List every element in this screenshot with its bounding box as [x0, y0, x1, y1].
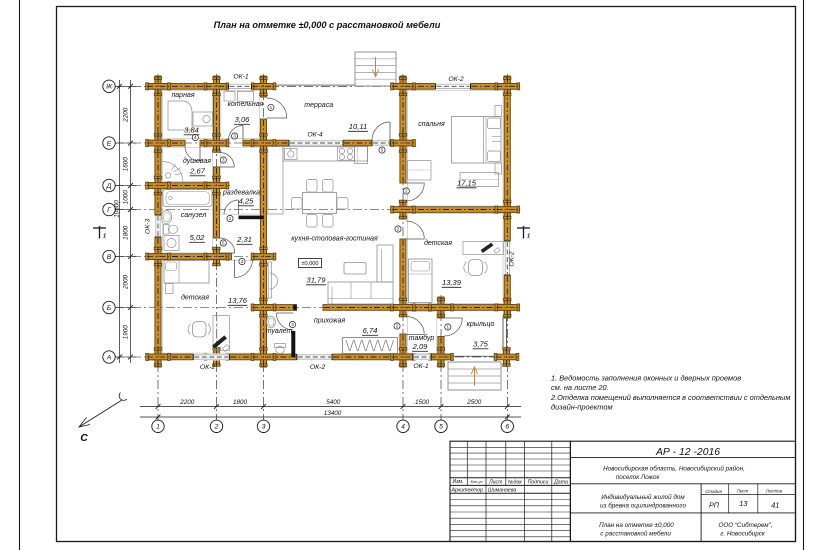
svg-text:туалет: туалет [266, 328, 293, 335]
svg-text:крыльцо: крыльцо [467, 321, 495, 328]
svg-text:5: 5 [222, 241, 225, 246]
svg-text:ОК-2: ОК-2 [310, 364, 326, 371]
svg-text:АР - 12 -2016: АР - 12 -2016 [655, 447, 720, 458]
svg-text:1000: 1000 [123, 190, 130, 205]
svg-text:тамбур: тамбур [409, 334, 435, 342]
svg-text:терраса: терраса [304, 102, 333, 109]
svg-text:±0,000: ±0,000 [301, 261, 318, 267]
svg-text:Новосибирская область, Новосиб: Новосибирская область, Новосибирский рай… [603, 465, 745, 473]
svg-text:1: 1 [527, 234, 530, 240]
svg-text:1. Ведомость заполнения оконны: 1. Ведомость заполнения оконных и дверны… [551, 374, 741, 383]
svg-text:5: 5 [439, 424, 443, 431]
svg-text:ОК-2: ОК-2 [200, 364, 216, 371]
svg-text:ОК-1: ОК-1 [233, 74, 249, 81]
svg-text:13: 13 [739, 499, 748, 508]
svg-text:2200: 2200 [179, 399, 195, 406]
svg-text:2,67: 2,67 [189, 167, 206, 176]
svg-text:санузел: санузел [181, 212, 207, 219]
svg-text:с расстановкой мебели: с расстановкой мебели [600, 529, 671, 537]
svg-text:3,06: 3,06 [235, 115, 251, 124]
svg-text:ООО “Сибтерем”,: ООО “Сибтерем”, [719, 521, 773, 529]
svg-text:5,02: 5,02 [190, 233, 206, 242]
svg-text:2.Отделка помещений выполняетс: 2.Отделка помещений выполняется в соотве… [550, 393, 790, 402]
svg-text:Стадия: Стадия [705, 489, 722, 494]
svg-text:3: 3 [291, 322, 294, 327]
svg-text:41: 41 [771, 501, 779, 510]
svg-text:Кол.уч: Кол.уч [471, 479, 483, 484]
svg-text:Е: Е [107, 140, 112, 147]
svg-text:13,39: 13,39 [442, 278, 462, 287]
svg-text:Дата: Дата [553, 479, 568, 485]
svg-text:детская: детская [181, 294, 209, 302]
svg-text:3,84: 3,84 [184, 126, 199, 135]
svg-text:прихожая: прихожая [314, 318, 346, 325]
svg-text:2500: 2500 [466, 399, 482, 406]
svg-text:Шиманаева: Шиманаева [488, 487, 516, 493]
svg-text:6: 6 [505, 424, 509, 431]
svg-text:2: 2 [214, 424, 219, 431]
svg-text:1500: 1500 [415, 399, 430, 406]
svg-text:котельная: котельная [228, 101, 264, 108]
svg-text:г. Новосибирск: г. Новосибирск [720, 529, 766, 537]
svg-text:спальня: спальня [418, 121, 445, 128]
svg-text:Листов: Листов [765, 489, 783, 494]
svg-text:1900: 1900 [123, 325, 130, 340]
svg-text:детская: детская [424, 239, 452, 247]
svg-text:1: 1 [447, 325, 450, 330]
svg-text:10,11: 10,11 [349, 122, 367, 131]
svg-text:2: 2 [405, 189, 408, 194]
svg-text:1: 1 [229, 216, 232, 221]
svg-text:А: А [106, 354, 112, 361]
svg-text:Архитектор: Архитектор [451, 487, 484, 493]
svg-text:3: 3 [233, 134, 236, 139]
svg-text:из бревна оцилиндрованного: из бревна оцилиндрованного [600, 501, 686, 509]
svg-text:3,75: 3,75 [473, 340, 489, 349]
svg-text:13400: 13400 [324, 410, 342, 417]
svg-text:1600: 1600 [123, 157, 130, 172]
svg-text:17,15: 17,15 [457, 179, 477, 188]
svg-text:1800: 1800 [123, 225, 130, 240]
svg-text:ОК-1: ОК-1 [413, 363, 429, 370]
svg-text:ОК-4: ОК-4 [307, 132, 323, 139]
svg-text:1: 1 [103, 234, 106, 240]
svg-text:2: 2 [397, 227, 400, 232]
svg-text:Лист: Лист [736, 489, 749, 494]
svg-text:4: 4 [401, 424, 405, 431]
svg-text:Д: Д [106, 183, 112, 190]
svg-text:31,79: 31,79 [306, 276, 326, 285]
svg-text:Б: Б [107, 305, 112, 312]
svg-text:Изм.: Изм. [452, 479, 463, 485]
svg-text:Подписи: Подписи [528, 479, 549, 485]
svg-text:2000: 2000 [123, 275, 130, 291]
svg-text:2,31: 2,31 [236, 235, 252, 244]
svg-text:раздевалка: раздевалка [222, 189, 260, 197]
svg-text:РП: РП [709, 501, 720, 510]
svg-text:4: 4 [194, 135, 197, 140]
svg-text:Лист: Лист [488, 479, 503, 485]
svg-text:5400: 5400 [326, 399, 341, 406]
svg-text:2,09: 2,09 [412, 342, 429, 351]
svg-text:План на отметке ±0,000: План на отметке ±0,000 [599, 522, 674, 529]
svg-text:2: 2 [241, 259, 244, 264]
svg-text:парная: парная [171, 92, 194, 99]
svg-text:1800: 1800 [233, 399, 248, 406]
svg-text:№док: №док [508, 479, 522, 485]
svg-text:5: 5 [381, 148, 384, 153]
svg-text:Ж: Ж [105, 84, 113, 91]
svg-text:поселок Ложок: поселок Ложок [616, 474, 661, 481]
svg-text:ОК-2: ОК-2 [448, 76, 464, 83]
svg-text:13,76: 13,76 [228, 296, 248, 305]
svg-text:3: 3 [262, 424, 266, 431]
svg-text:Индивидуальный жилой дом: Индивидуальный жилой дом [601, 493, 685, 501]
svg-text:кухня-столовая-гостиная: кухня-столовая-гостиная [291, 236, 378, 243]
svg-text:дизайн-проектом: дизайн-проектом [551, 402, 613, 411]
svg-text:ОК-3: ОК-3 [145, 219, 152, 235]
svg-text:В: В [107, 254, 112, 261]
svg-text:1: 1 [270, 105, 273, 110]
svg-text:душевая: душевая [183, 157, 211, 165]
svg-text:3: 3 [222, 158, 225, 163]
svg-text:2200: 2200 [123, 107, 130, 123]
svg-text:План на отметке ±0,000 с расст: План на отметке ±0,000 с расстановкой ме… [214, 20, 441, 30]
svg-text:С: С [80, 432, 88, 444]
svg-text:2: 2 [396, 324, 399, 329]
svg-text:ОК-2: ОК-2 [509, 251, 516, 267]
svg-text:см. на листе 20.: см. на листе 20. [551, 383, 609, 392]
svg-text:1: 1 [156, 424, 160, 431]
svg-text:6,74: 6,74 [363, 326, 378, 335]
svg-text:4,25: 4,25 [239, 197, 255, 206]
